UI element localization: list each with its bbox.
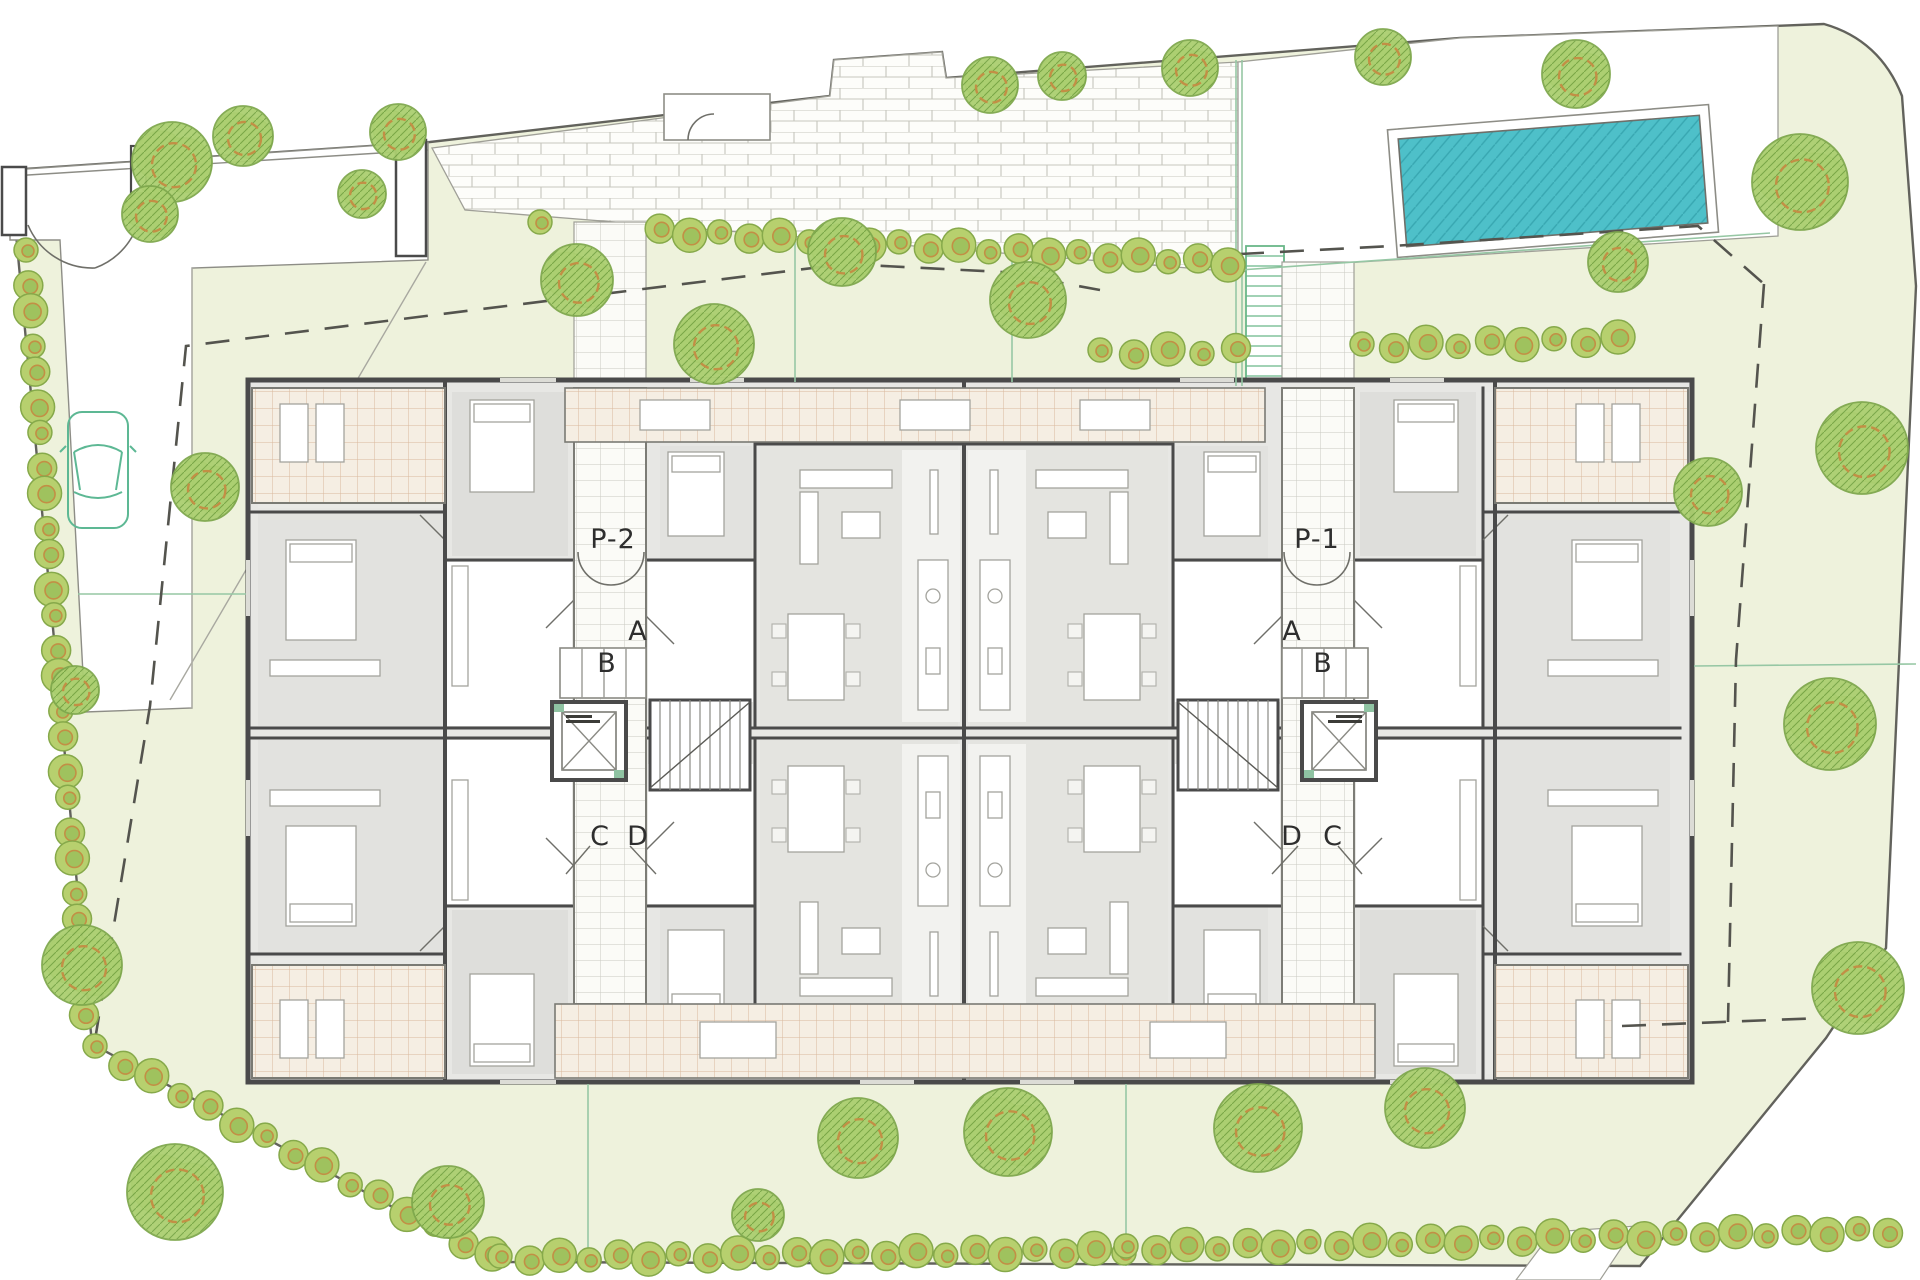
tree-icon	[1812, 942, 1904, 1034]
unit-label-b-right: B	[1313, 648, 1333, 679]
tree-icon	[1784, 678, 1876, 770]
tree-icon	[127, 1144, 223, 1240]
tree-icon	[213, 106, 273, 166]
tree-icon	[51, 666, 99, 714]
tree-icon	[990, 262, 1066, 338]
site-plan-page: P-2 P-1 A B C D A B D C	[0, 0, 1920, 1280]
tree-icon	[42, 925, 122, 1005]
unit-label-b-left: B	[597, 648, 617, 679]
tree-icon	[338, 170, 386, 218]
tree-icon	[1214, 1084, 1302, 1172]
tree-icon	[541, 244, 613, 316]
entry-walk-p1	[1282, 262, 1354, 388]
entry-niche	[664, 94, 770, 140]
unit-label-d-left: D	[627, 821, 649, 852]
tree-icon	[122, 186, 178, 242]
entrance-label-p1: P-1	[1294, 524, 1340, 555]
unit-label-c-right: C	[1323, 821, 1343, 852]
unit-label-d-right: D	[1281, 821, 1303, 852]
tree-icon	[1752, 134, 1848, 230]
pool-water	[1398, 115, 1708, 246]
tree-icon	[964, 1088, 1052, 1176]
entrance-label-p2: P-2	[590, 524, 636, 555]
tree-icon	[370, 104, 426, 160]
tree-icon	[674, 304, 754, 384]
tree-icon	[171, 453, 239, 521]
tree-icon	[1674, 458, 1742, 526]
unit-label-c-left: C	[590, 821, 610, 852]
building: P-2 P-1 A B C D A B D C	[248, 380, 1692, 1082]
unit-label-a-right: A	[1282, 616, 1301, 647]
tree-icon	[818, 1098, 898, 1178]
tree-icon	[1542, 40, 1610, 108]
tree-icon	[962, 57, 1018, 113]
tree-icon	[1816, 402, 1908, 494]
tree-icon	[412, 1166, 484, 1238]
tree-icon	[1355, 29, 1411, 85]
tree-icon	[732, 1189, 784, 1241]
site-plan-drawing: P-2 P-1 A B C D A B D C	[0, 0, 1920, 1280]
tree-icon	[1162, 40, 1218, 96]
tree-icon	[808, 218, 876, 286]
tree-icon	[1385, 1068, 1465, 1148]
swimming-pool	[1387, 105, 1718, 258]
tree-icon	[1038, 52, 1086, 100]
unit-label-a-left: A	[628, 616, 647, 647]
tree-icon	[1588, 232, 1648, 292]
